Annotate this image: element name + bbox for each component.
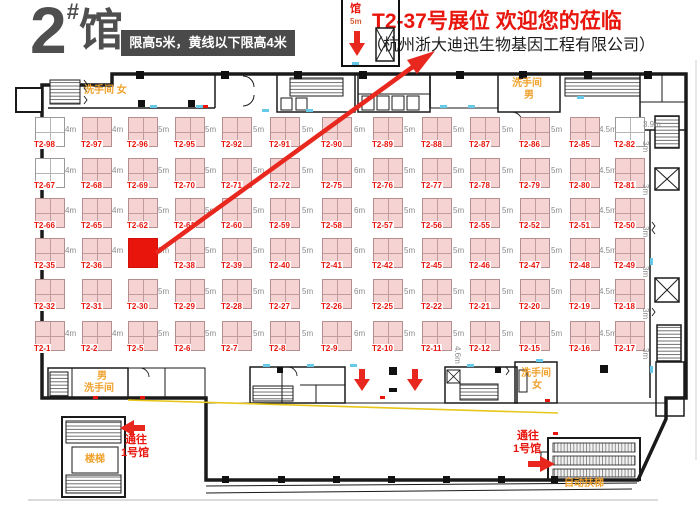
booth-label-T2-61: T2-61 xyxy=(173,221,196,230)
aisle-width-label: 5m xyxy=(404,206,415,215)
booth-label-T2-76: T2-76 xyxy=(371,181,394,190)
aisle-width-label: 4m xyxy=(112,166,123,175)
booth-label-T2-62: T2-62 xyxy=(126,221,149,230)
aisle-width-label: 4m xyxy=(65,329,76,338)
aisle-width-label: 5m xyxy=(205,206,216,215)
aisle-width-label: 5m xyxy=(302,287,313,296)
aisle-width-label: 5m xyxy=(551,206,562,215)
booth-T2-37-highlighted xyxy=(128,238,158,268)
booth-label-T2-72: T2-72 xyxy=(268,181,291,190)
aisle-width-label: 5m xyxy=(253,329,264,338)
aisle-width-label: 5m xyxy=(158,329,169,338)
booth-label-T2-56: T2-56 xyxy=(420,221,443,230)
aisle-width-label: 4m xyxy=(112,329,123,338)
restroom-men-bottom-label-2: 洗手间 xyxy=(84,383,114,394)
aisle-width-label: 5m xyxy=(502,166,513,175)
restroom-women-top-label: 洗手间 女 xyxy=(84,85,127,96)
booth-label-T2-40: T2-40 xyxy=(268,261,291,270)
aisle-width-label: 5m xyxy=(302,206,313,215)
dimension-label: 3m xyxy=(641,141,650,152)
booth-label-T2-79: T2-79 xyxy=(518,181,541,190)
booth-label-T2-30: T2-30 xyxy=(126,302,149,311)
aisle-width-label: 5m xyxy=(158,206,169,215)
escalator-label: 自动扶梯 xyxy=(564,478,604,489)
booth-label-T2-32: T2-32 xyxy=(33,302,56,311)
aisle-width-label: 4m xyxy=(65,246,76,255)
booth-label-T2-5: T2-5 xyxy=(126,344,144,353)
booth-label-T2-15: T2-15 xyxy=(518,344,541,353)
booth-label-T2-39: T2-39 xyxy=(220,261,243,270)
aisle-width-label: 5m xyxy=(302,166,313,175)
restroom-men-bottom-label-1: 男 xyxy=(97,371,107,382)
aisle-width-label: 5m xyxy=(551,166,562,175)
dimension-label: 3m xyxy=(641,226,650,237)
booth-label-T2-21: T2-21 xyxy=(468,302,491,311)
to-hall1-left-label-1: 通往 xyxy=(125,434,147,446)
booth-label-T2-81: T2-81 xyxy=(613,181,636,190)
booth-label-T2-6: T2-6 xyxy=(173,344,191,353)
booth-label-T2-55: T2-55 xyxy=(468,221,491,230)
aisle-width-label: 5m xyxy=(158,246,169,255)
restroom-men-top-label-2: 男 xyxy=(524,90,534,101)
aisle-width-label: 6m xyxy=(354,329,365,338)
aisle-width-label: 5m xyxy=(551,246,562,255)
booth-label-T2-41: T2-41 xyxy=(320,261,343,270)
dimension-label: 3m xyxy=(641,266,650,277)
aisle-width-label: 5m xyxy=(404,166,415,175)
booth-label-T2-90: T2-90 xyxy=(320,140,343,149)
booth-label-T2-57: T2-57 xyxy=(371,221,394,230)
booth-label-T2-69: T2-69 xyxy=(126,181,149,190)
booth-label-T2-87: T2-87 xyxy=(468,140,491,149)
booth-label-T2-11: T2-11 xyxy=(420,344,442,353)
to-hall1-right-label-1: 通往 xyxy=(517,430,539,442)
booth-label-T2-27: T2-27 xyxy=(268,302,291,311)
aisle-width-label: 5m xyxy=(404,246,415,255)
booth-label-T2-25: T2-25 xyxy=(371,302,394,311)
booth-label-T2-97: T2-97 xyxy=(80,140,103,149)
booth-label-T2-22: T2-22 xyxy=(420,302,443,311)
aisle-width-label: 5m xyxy=(551,329,562,338)
aisle-width-label: 5m xyxy=(302,246,313,255)
booth-label-T2-75: T2-75 xyxy=(320,181,343,190)
aisle-width-label: 4m xyxy=(65,166,76,175)
aisle-width-label: 5m xyxy=(453,329,464,338)
booth-label-T2-19: T2-19 xyxy=(568,302,591,311)
booth-label-T2-77: T2-77 xyxy=(420,181,443,190)
booth-label-T2-86: T2-86 xyxy=(518,140,541,149)
restroom-men-top-label-1: 洗手间 xyxy=(512,78,542,89)
aisle-width-label: 5m xyxy=(205,125,216,134)
booth-label-T2-48: T2-48 xyxy=(568,261,591,270)
dimension-label: 3m xyxy=(641,348,650,359)
booth-label-T2-20: T2-20 xyxy=(518,302,541,311)
aisle-width-label: 5m xyxy=(302,125,313,134)
to-hall1-left-label-2: 1号馆 xyxy=(121,447,149,459)
aisle-width-label: 5m xyxy=(404,287,415,296)
aisle-width-label: 5m xyxy=(253,246,264,255)
aisle-width-label: 5m xyxy=(453,246,464,255)
booth-label-T2-88: T2-88 xyxy=(420,140,443,149)
booth-label-T2-67: T2-67 xyxy=(33,181,56,190)
aisle-width-label: 5m xyxy=(205,329,216,338)
booth-label-T2-18: T2-18 xyxy=(613,302,636,311)
booth-label-T2-80: T2-80 xyxy=(568,181,591,190)
booth-label-T2-50: T2-50 xyxy=(613,221,636,230)
booth-label-T2-89: T2-89 xyxy=(371,140,394,149)
booth-label-T2-2: T2-2 xyxy=(80,344,98,353)
to-hall1-right-label-2: 1号馆 xyxy=(513,443,541,455)
aisle-width-label: 4m xyxy=(65,125,76,134)
restroom-women-bottom-label-1: 洗手间 xyxy=(521,368,551,379)
aisle-width-label: 5m xyxy=(253,206,264,215)
booth-label-T2-85: T2-85 xyxy=(568,140,591,149)
booth-label-T2-78: T2-78 xyxy=(468,181,491,190)
aisle-width-label: 5m xyxy=(453,287,464,296)
booth-label-T2-52: T2-52 xyxy=(518,221,541,230)
aisle-width-label: 5m xyxy=(502,246,513,255)
aisle-width-label: 5m xyxy=(302,329,313,338)
booth-label-T2-28: T2-28 xyxy=(220,302,243,311)
dimension-label: 3.9m xyxy=(643,120,661,129)
aisle-width-label: 5m xyxy=(502,329,513,338)
aisle-width-label: 5m xyxy=(205,246,216,255)
booth-label-T2-17: T2-17 xyxy=(613,344,636,353)
aisle-width-label: 5m xyxy=(253,287,264,296)
restroom-women-bottom-label-2: 女 xyxy=(532,380,542,391)
aisle-width-label: 5m xyxy=(453,166,464,175)
aisle-width-label: 4m xyxy=(112,206,123,215)
booth-label-T2-8: T2-8 xyxy=(268,344,286,353)
aisle-width-label: 5m xyxy=(453,125,464,134)
booth-label-T2-70: T2-70 xyxy=(173,181,196,190)
aisle-width-label: 5m xyxy=(551,125,562,134)
aisle-width-label: 4m xyxy=(65,206,76,215)
floor-plan-page: T2-984mT2-974mT2-965mT2-955mT2-925mT2-91… xyxy=(0,0,700,507)
aisle-width-label: 6m xyxy=(354,206,365,215)
booth-label-T2-60: T2-60 xyxy=(220,221,243,230)
booth-label-T2-66: T2-66 xyxy=(33,221,56,230)
booth-label-T2-92: T2-92 xyxy=(220,140,243,149)
entrance-hall-label: 馆 xyxy=(350,3,361,15)
booth-label-T2-29: T2-29 xyxy=(173,302,196,311)
booth-label-T2-35: T2-35 xyxy=(33,261,56,270)
booth-label-T2-96: T2-96 xyxy=(126,140,149,149)
entrance-clearance: 5m xyxy=(350,17,362,26)
dimension-label: 3m xyxy=(641,184,650,195)
booth-label-T2-45: T2-45 xyxy=(420,261,443,270)
booth-label-T2-38: T2-38 xyxy=(173,261,196,270)
booth-label-T2-42: T2-42 xyxy=(371,261,394,270)
booth-label-T2-16: T2-16 xyxy=(568,344,591,353)
entrance-box: 馆 5m xyxy=(341,0,400,67)
aisle-width-label: 5m xyxy=(253,166,264,175)
aisle-width-label: 5m xyxy=(502,125,513,134)
booth-label-T2-51: T2-51 xyxy=(568,221,591,230)
stairs-label: 楼梯 xyxy=(85,454,105,465)
booth-label-T2-82: T2-82 xyxy=(613,140,636,149)
booth-label-T2-91: T2-91 xyxy=(268,140,291,149)
aisle-width-label: 5m xyxy=(453,206,464,215)
booth-label-T2-68: T2-68 xyxy=(80,181,103,190)
booth-label-T2-12: T2-12 xyxy=(468,344,491,353)
booth-grid: T2-984mT2-974mT2-965mT2-955mT2-925mT2-91… xyxy=(0,0,700,507)
aisle-width-label: 6m xyxy=(354,166,365,175)
aisle-width-label: 5m xyxy=(158,166,169,175)
aisle-width-label: 5m xyxy=(404,329,415,338)
aisle-width-label: 5m xyxy=(158,287,169,296)
booth-label-T2-58: T2-58 xyxy=(320,221,343,230)
booth-label-T2-71: T2-71 xyxy=(220,181,243,190)
aisle-width-label: 6m xyxy=(354,125,365,134)
dimension-label: 3m xyxy=(641,308,650,319)
booth-label-T2-26: T2-26 xyxy=(320,302,343,311)
aisle-width-label: 4m xyxy=(112,246,123,255)
aisle-width-label: 5m xyxy=(502,206,513,215)
booth-label-T2-47: T2-47 xyxy=(518,261,541,270)
booth-label-T2-9: T2-9 xyxy=(320,344,338,353)
aisle-width-label: 5m xyxy=(205,166,216,175)
booth-label-T2-7: T2-7 xyxy=(220,344,238,353)
dimension-label: 4.6m xyxy=(453,346,462,364)
booth-label-T2-46: T2-46 xyxy=(468,261,491,270)
aisle-width-label: 4m xyxy=(112,125,123,134)
aisle-width-label: 5m xyxy=(551,287,562,296)
aisle-width-label: 6m xyxy=(354,287,365,296)
booth-label-T2-10: T2-10 xyxy=(371,344,394,353)
booth-label-T2-36: T2-36 xyxy=(80,261,103,270)
aisle-width-label: 6m xyxy=(354,246,365,255)
booth-label-T2-65: T2-65 xyxy=(80,221,103,230)
aisle-width-label: 5m xyxy=(502,287,513,296)
booth-label-T2-95: T2-95 xyxy=(173,140,196,149)
booth-label-T2-31: T2-31 xyxy=(80,302,103,311)
booth-label-T2-59: T2-59 xyxy=(268,221,291,230)
booth-label-T2-1: T2-1 xyxy=(33,344,51,353)
aisle-width-label: 5m xyxy=(158,125,169,134)
booth-label-T2-49: T2-49 xyxy=(613,261,636,270)
aisle-width-label: 5m xyxy=(404,125,415,134)
aisle-width-label: 5m xyxy=(253,125,264,134)
aisle-width-label: 5m xyxy=(205,287,216,296)
booth-label-T2-98: T2-98 xyxy=(33,140,56,149)
